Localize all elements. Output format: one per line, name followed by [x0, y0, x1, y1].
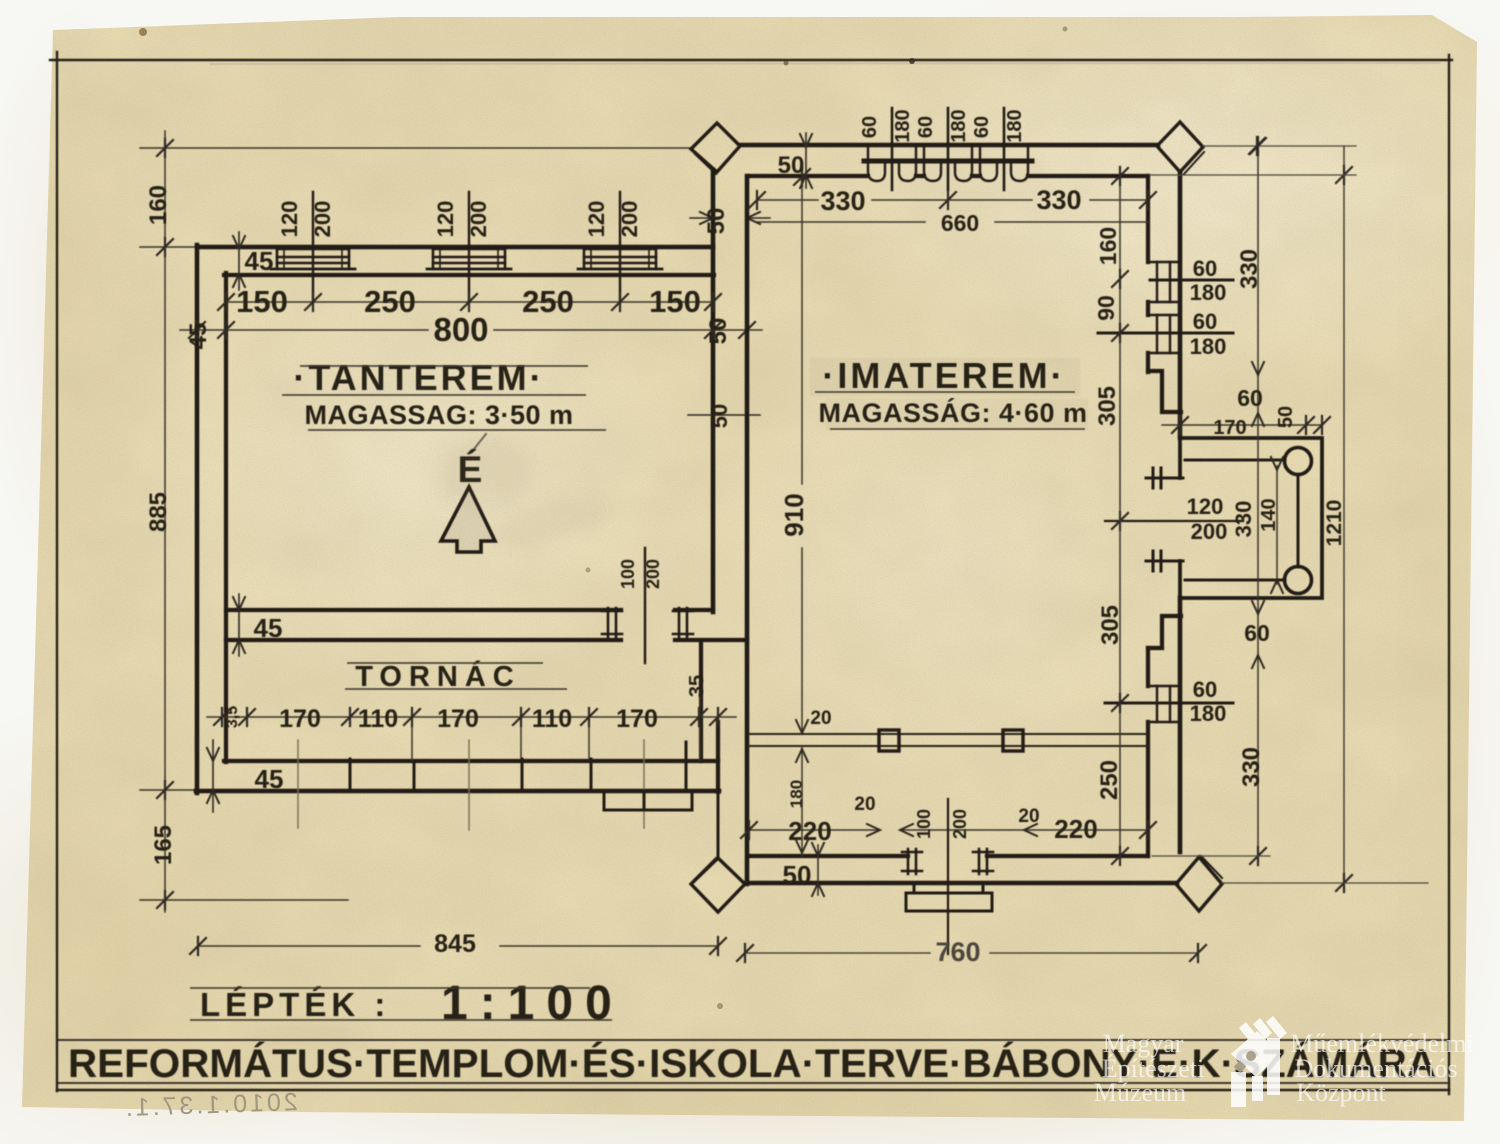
- svg-text:150: 150: [236, 284, 288, 319]
- svg-text:165: 165: [150, 825, 177, 865]
- svg-text:110: 110: [532, 705, 572, 733]
- svg-text:·IMATEREM·: ·IMATEREM·: [822, 355, 1065, 396]
- svg-text:160: 160: [1095, 227, 1121, 265]
- svg-text:200: 200: [643, 559, 663, 589]
- svg-text:330: 330: [820, 186, 865, 216]
- svg-text:200: 200: [950, 809, 970, 839]
- svg-text:800: 800: [433, 311, 488, 348]
- svg-text:60: 60: [1193, 309, 1217, 334]
- svg-text:660: 660: [941, 210, 979, 236]
- svg-text:20: 20: [1018, 806, 1039, 827]
- svg-text:50: 50: [778, 152, 805, 179]
- svg-text:50: 50: [707, 404, 732, 428]
- svg-text:Központ: Központ: [1296, 1078, 1386, 1107]
- svg-text:110: 110: [358, 705, 398, 733]
- svg-text:50: 50: [705, 318, 732, 345]
- svg-text:250: 250: [1096, 760, 1123, 800]
- svg-text:MAGASSÁG: 4·60 m: MAGASSÁG: 4·60 m: [818, 397, 1087, 428]
- svg-text:45: 45: [254, 613, 283, 643]
- svg-text:220: 220: [788, 816, 831, 846]
- svg-text:885: 885: [145, 492, 172, 532]
- svg-text:90: 90: [1093, 295, 1119, 321]
- svg-text:60: 60: [1193, 256, 1217, 281]
- svg-text:330: 330: [1231, 501, 1256, 538]
- svg-text:120: 120: [1187, 494, 1224, 519]
- svg-text:TORNÁC: TORNÁC: [355, 659, 521, 693]
- svg-text:60: 60: [1193, 677, 1217, 702]
- svg-text:120: 120: [433, 201, 458, 238]
- svg-text:140: 140: [1258, 498, 1280, 531]
- svg-text:170: 170: [279, 705, 321, 733]
- svg-text:170: 170: [437, 705, 479, 733]
- svg-text:180: 180: [948, 109, 970, 142]
- svg-text:250: 250: [364, 284, 416, 319]
- svg-text:180: 180: [1190, 280, 1227, 305]
- svg-text:60: 60: [1237, 385, 1263, 411]
- svg-text:LÉPTÉK :: LÉPTÉK :: [200, 986, 390, 1023]
- svg-text:Múzeum: Múzeum: [1094, 1078, 1186, 1107]
- svg-text:170: 170: [1213, 417, 1246, 439]
- svg-text:200: 200: [1191, 519, 1228, 544]
- svg-text:60: 60: [1244, 620, 1270, 646]
- svg-text:220: 220: [1054, 814, 1097, 844]
- svg-text:60: 60: [971, 116, 993, 138]
- svg-text:150: 150: [649, 284, 701, 319]
- svg-text:100: 100: [618, 559, 638, 589]
- svg-text:250: 250: [522, 284, 574, 319]
- svg-text:50: 50: [1275, 406, 1297, 428]
- svg-text:845: 845: [434, 930, 476, 958]
- svg-text:170: 170: [616, 705, 658, 733]
- svg-text:3,5: 3,5: [224, 706, 241, 728]
- svg-text:1210: 1210: [1323, 500, 1346, 547]
- svg-text:20: 20: [854, 794, 875, 815]
- svg-text:50: 50: [703, 208, 730, 235]
- svg-text:200: 200: [466, 201, 491, 238]
- svg-text:180: 180: [787, 780, 806, 808]
- svg-text:200: 200: [617, 201, 642, 238]
- svg-text:330: 330: [1238, 747, 1265, 787]
- svg-text:50: 50: [783, 860, 812, 890]
- svg-text:180: 180: [1190, 334, 1227, 359]
- svg-text:180: 180: [1190, 701, 1227, 726]
- svg-text:45: 45: [185, 323, 212, 350]
- svg-text:60: 60: [915, 116, 937, 138]
- svg-text:120: 120: [277, 201, 302, 238]
- svg-text:305: 305: [1094, 386, 1121, 426]
- svg-text:330: 330: [1236, 249, 1263, 289]
- svg-text:45: 45: [255, 764, 284, 794]
- svg-text:330: 330: [1036, 185, 1081, 215]
- svg-text:760: 760: [935, 937, 980, 967]
- svg-text:200: 200: [310, 201, 335, 238]
- svg-text:180: 180: [892, 109, 914, 142]
- svg-text:910: 910: [779, 493, 809, 536]
- svg-text:MAGASSAG: 3·50 m: MAGASSAG: 3·50 m: [304, 400, 573, 430]
- svg-text:180: 180: [1004, 109, 1026, 142]
- svg-text:120: 120: [584, 201, 609, 238]
- svg-text:1:100: 1:100: [441, 977, 624, 1030]
- svg-text:35: 35: [686, 675, 708, 697]
- svg-text:160: 160: [145, 185, 172, 225]
- svg-text:REFORMÁTUS·TEMPLOM·ÉS·ISKOLA·T: REFORMÁTUS·TEMPLOM·ÉS·ISKOLA·TERVE·BÁBON…: [68, 1041, 1436, 1086]
- svg-text:100: 100: [914, 809, 934, 839]
- svg-text:45: 45: [245, 246, 274, 276]
- svg-text:305: 305: [1097, 605, 1124, 645]
- svg-text:20: 20: [810, 708, 831, 729]
- svg-text:60: 60: [859, 116, 881, 138]
